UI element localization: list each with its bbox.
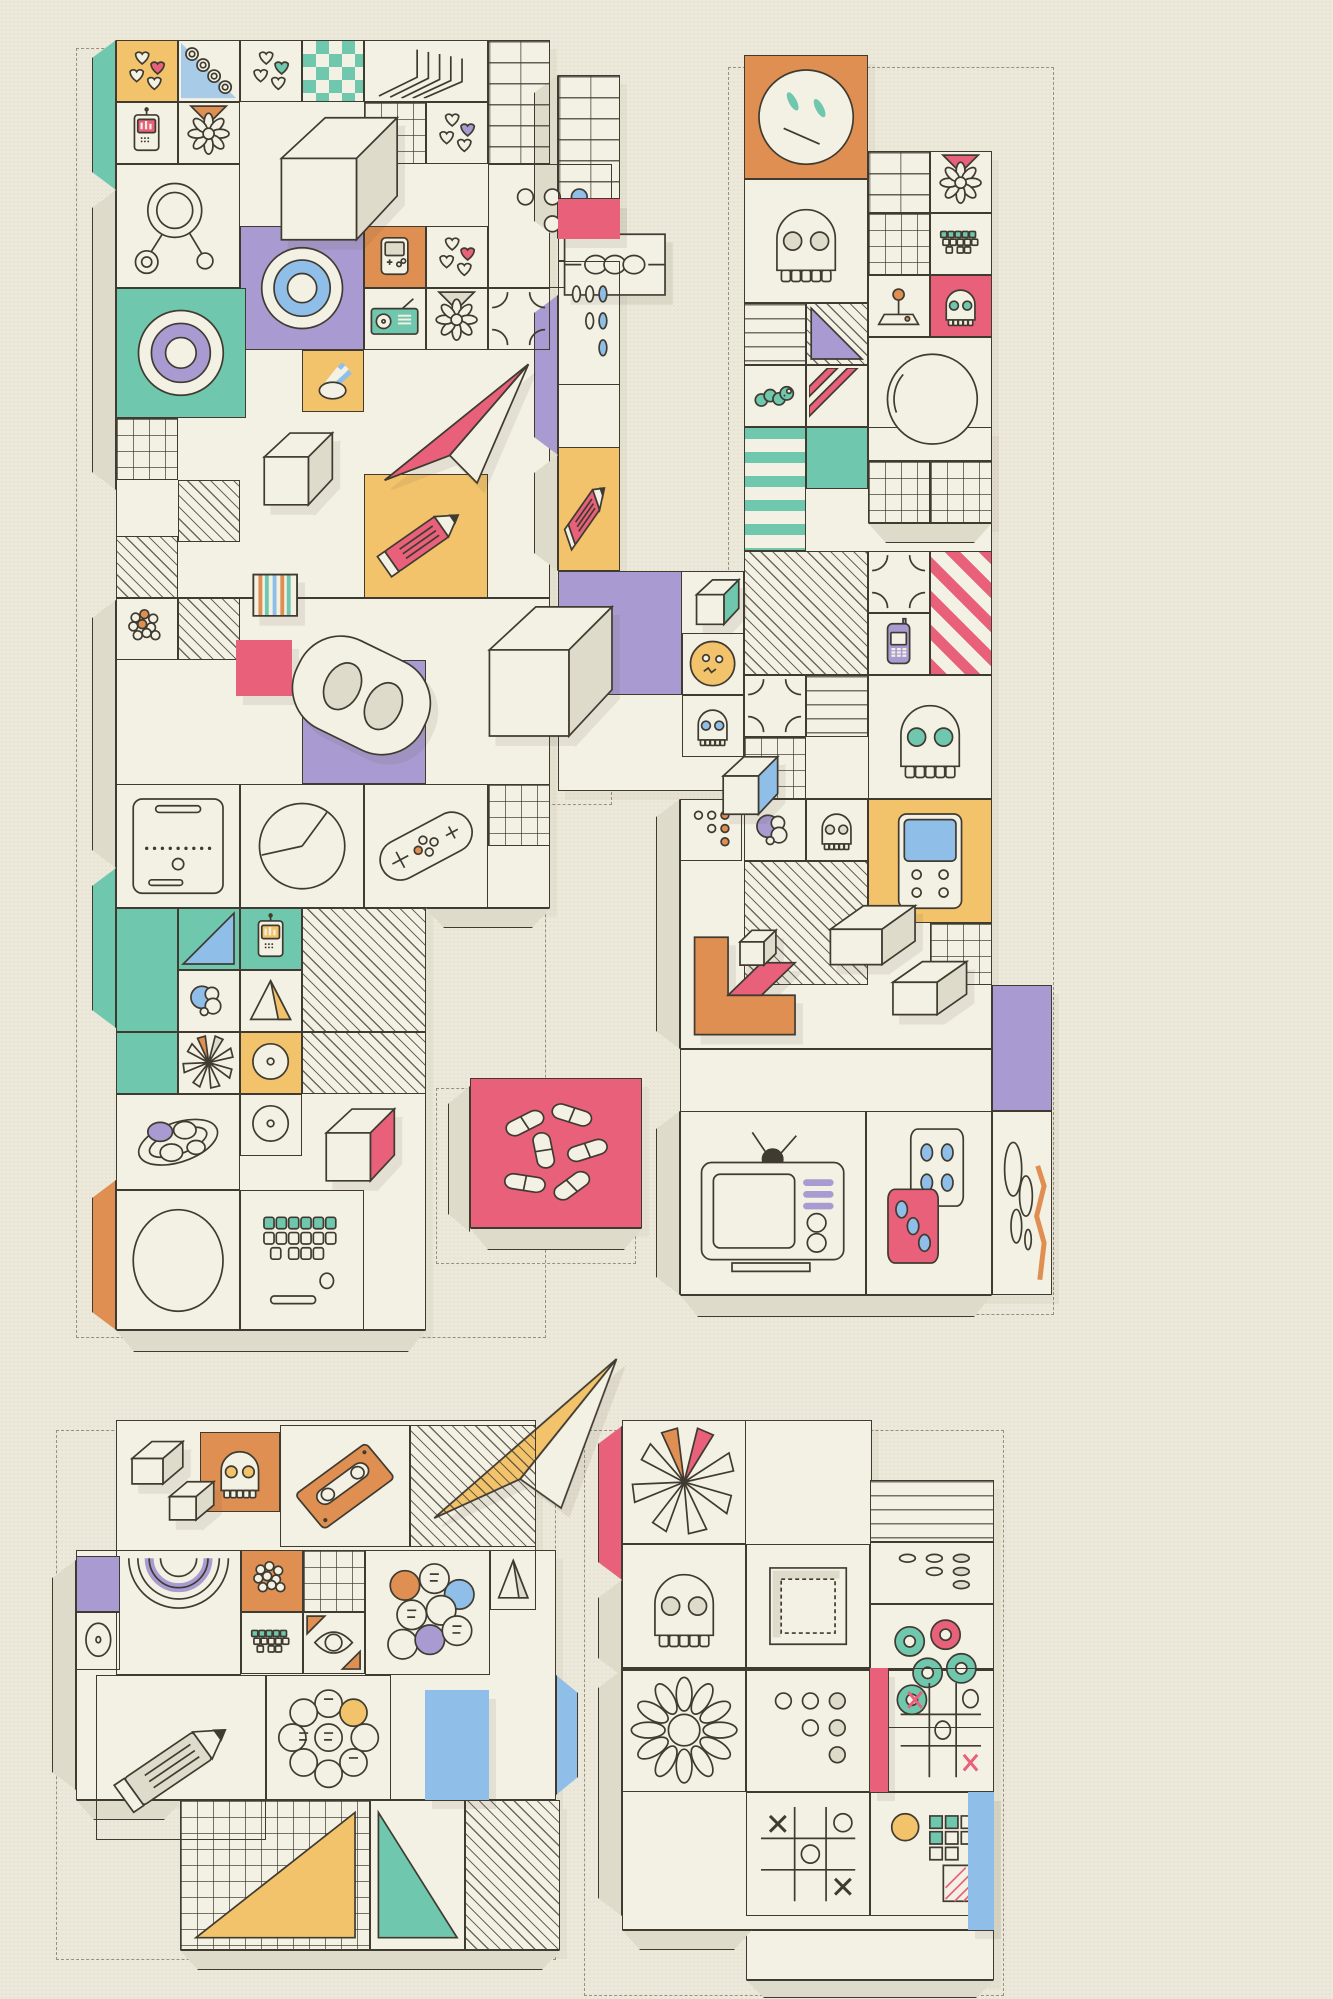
bevel-face-cream2 — [92, 600, 116, 868]
pattern-tile — [806, 675, 868, 737]
canvas — [0, 0, 1333, 1999]
skull-icon — [806, 799, 868, 861]
hearts-icon — [116, 40, 178, 102]
bevel-face-cream2 — [656, 1111, 680, 1295]
pattern-tile — [303, 1550, 365, 1612]
board-icon — [116, 784, 240, 908]
popcorn-icon — [241, 1550, 303, 1612]
pattern-tile — [488, 784, 550, 846]
dice-icon — [866, 1111, 992, 1295]
frame-icon — [746, 1544, 870, 1668]
disc-icon — [240, 1094, 302, 1156]
tv-icon — [680, 1111, 866, 1295]
smiley-icon — [682, 633, 744, 695]
bevel-face-cream2 — [116, 1330, 426, 1352]
ttt-icon — [888, 1668, 994, 1792]
daisy-icon — [178, 102, 240, 164]
phone-icon — [868, 613, 930, 675]
arcs-icon — [116, 1550, 241, 1675]
slot-icon — [240, 908, 302, 970]
bevel-face-teal — [92, 868, 116, 1028]
bigcircle-icon — [116, 1190, 240, 1330]
bevel-face-cream2 — [598, 1670, 622, 1916]
pattern-tile — [178, 480, 240, 542]
chain-icon — [178, 40, 240, 102]
tri2-icon — [178, 908, 240, 970]
orangeL-icon — [680, 923, 810, 1049]
dotgrid-icon — [558, 261, 620, 385]
disc-icon — [240, 1032, 302, 1094]
starburst-icon — [622, 1420, 746, 1544]
joystick-icon — [868, 275, 930, 337]
bevel-face-cream2 — [868, 523, 992, 543]
bevel-face-cream2 — [448, 1086, 470, 1232]
bevel-face-blue — [556, 1675, 578, 1795]
fold-icon — [490, 1550, 536, 1610]
starburst-icon — [178, 1032, 240, 1094]
pattern-tile — [465, 1800, 560, 1950]
pattern-tile — [178, 598, 240, 660]
smilies-icon — [365, 1550, 490, 1675]
hearts-icon — [426, 226, 488, 288]
pattern-tile — [116, 908, 178, 1032]
bevel-face-orange — [92, 1180, 116, 1330]
popcorn-icon — [116, 598, 178, 660]
pattern-tile — [425, 1690, 489, 1800]
cube-icon — [302, 1094, 402, 1194]
loopellipse-icon — [116, 1094, 240, 1190]
pattern-tile — [116, 418, 178, 480]
bevel-face-cream2 — [180, 1950, 560, 1970]
pattern-tile — [302, 1032, 426, 1094]
pattern-tile — [558, 199, 620, 239]
pattern-tile — [868, 461, 930, 523]
disc-icon — [76, 1612, 120, 1670]
clock-icon — [240, 784, 364, 908]
daisy-icon — [426, 288, 488, 350]
pattern-tile — [302, 908, 426, 1032]
pattern-tile — [930, 461, 992, 523]
dotgrid-icon — [870, 1542, 994, 1604]
bevel-face-cream2 — [92, 190, 116, 490]
ttt-icon — [746, 1792, 870, 1916]
skull-icon — [744, 179, 868, 303]
cube-icon — [682, 571, 744, 633]
daisy-icon — [930, 151, 992, 213]
bevel-face-cream2 — [746, 1980, 994, 1998]
pattern-tile — [870, 1668, 888, 1792]
flower-icon — [622, 1668, 746, 1792]
pattern-tile — [868, 151, 930, 213]
bevel-face-cream2 — [680, 1295, 992, 1317]
keycaps-icon — [930, 213, 992, 275]
pattern-tile — [968, 1792, 994, 1930]
pattern-tile — [116, 1032, 178, 1094]
sphere-icon — [868, 337, 992, 461]
bevel-face-teal — [92, 40, 116, 190]
molecule-icon — [116, 164, 240, 288]
radio-icon — [364, 288, 426, 350]
pattern-tile — [870, 1480, 994, 1542]
pattern-tile — [744, 427, 806, 551]
cassette-icon — [280, 1425, 410, 1547]
bevel-face-cream2 — [52, 1560, 76, 1790]
bevel-face-cream2 — [656, 799, 680, 1049]
skull-icon — [930, 275, 992, 337]
face-icon — [744, 55, 868, 179]
pad-icon — [364, 784, 488, 908]
bevel-face-cream2 — [622, 1930, 752, 1950]
pattern-tile — [116, 536, 178, 598]
tri2-icon — [180, 1800, 370, 1950]
plane-icon — [364, 350, 550, 500]
pills-icon — [470, 1078, 642, 1228]
cubes-icon — [804, 885, 1004, 1045]
skull-icon — [868, 675, 992, 799]
fold-icon — [240, 970, 302, 1032]
pattern-tile — [488, 40, 550, 164]
pattern-tile — [558, 75, 620, 199]
keycaps-icon — [241, 1612, 303, 1674]
dotgrid-icon — [746, 1668, 870, 1792]
cube-icon — [704, 745, 784, 825]
bevel-face-cream2 — [426, 908, 550, 928]
tile-plate — [746, 1930, 994, 1980]
rings-icon — [992, 1111, 1052, 1295]
marshmallow-icon — [266, 600, 456, 790]
pencil-icon — [558, 447, 620, 571]
bubbles-icon — [178, 970, 240, 1032]
pattern-tile — [744, 303, 806, 365]
target-icon — [116, 288, 246, 418]
pattern-tile — [868, 213, 930, 275]
pattern-tile — [410, 1425, 536, 1547]
bevel-face-cream2 — [470, 1228, 642, 1250]
cube-icon — [240, 418, 340, 518]
hearts-icon — [426, 102, 488, 164]
skull-icon — [622, 1544, 746, 1668]
eye-icon — [303, 1612, 365, 1674]
pattern-tile — [806, 427, 868, 489]
brushes-icon — [302, 350, 364, 412]
quarterfans-icon — [744, 675, 806, 737]
quarterfans-icon — [488, 288, 550, 350]
quarterfans-icon — [868, 551, 930, 613]
pattern-tile — [744, 551, 868, 675]
cube-icon — [240, 92, 410, 262]
mac-icon — [240, 1190, 364, 1330]
smiloop-icon — [266, 1675, 391, 1800]
tri-icon — [806, 303, 868, 365]
cubes-icon — [116, 1426, 236, 1541]
tri-icon — [370, 1800, 465, 1950]
cube-icon — [446, 580, 626, 760]
pattern-tile — [930, 551, 992, 675]
flag-icon — [806, 365, 868, 427]
slot-icon — [116, 102, 178, 164]
worm-icon — [744, 365, 806, 427]
pattern-tile — [76, 1556, 120, 1612]
